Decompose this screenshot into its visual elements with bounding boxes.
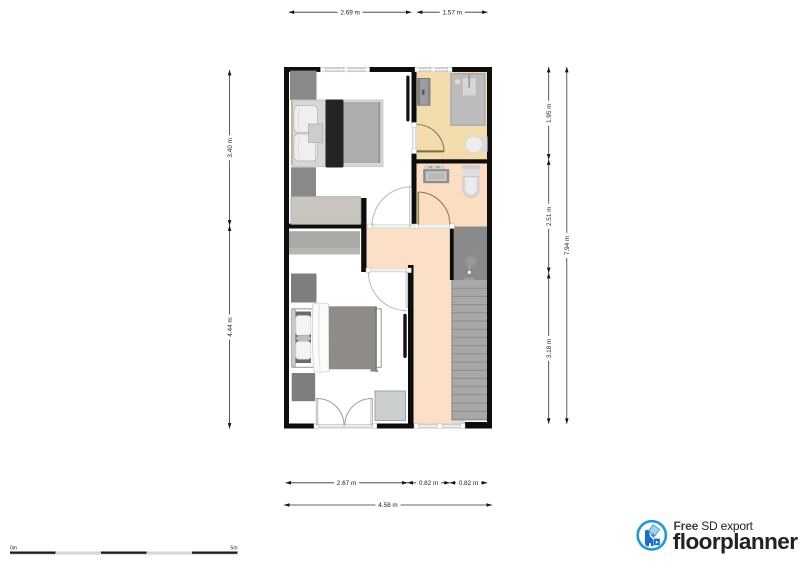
svg-text:3.40 m: 3.40 m bbox=[227, 138, 234, 158]
svg-text:1.57 m: 1.57 m bbox=[442, 9, 462, 16]
svg-text:3.18 m: 3.18 m bbox=[546, 339, 553, 359]
svg-text:4.44 m: 4.44 m bbox=[227, 317, 234, 337]
svg-text:2.51 m: 2.51 m bbox=[546, 206, 553, 226]
svg-text:4.58 m: 4.58 m bbox=[378, 502, 398, 509]
svg-text:5m: 5m bbox=[231, 545, 238, 551]
svg-text:2.67 m: 2.67 m bbox=[337, 480, 357, 487]
svg-text:2.69 m: 2.69 m bbox=[340, 9, 360, 16]
svg-text:floorplanner: floorplanner bbox=[673, 529, 798, 554]
svg-text:0m: 0m bbox=[10, 545, 17, 551]
svg-text:1.95 m: 1.95 m bbox=[546, 103, 553, 123]
svg-text:0.82 m: 0.82 m bbox=[419, 480, 439, 487]
svg-text:0.82 m: 0.82 m bbox=[459, 480, 479, 487]
svg-text:7.94 m: 7.94 m bbox=[564, 236, 571, 256]
